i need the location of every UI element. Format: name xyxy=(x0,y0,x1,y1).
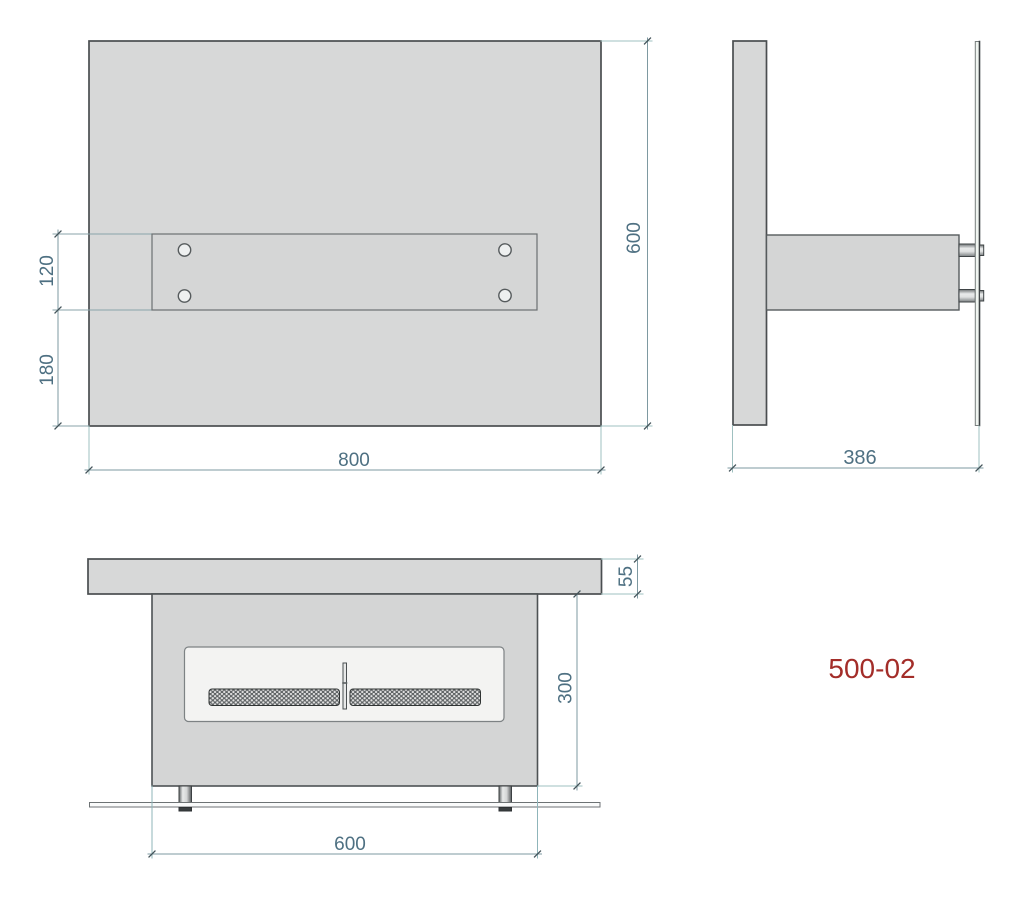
svg-text:55: 55 xyxy=(616,566,637,587)
svg-text:500-02: 500-02 xyxy=(828,653,915,684)
svg-text:180: 180 xyxy=(37,354,58,386)
svg-text:300: 300 xyxy=(556,672,577,704)
svg-text:600: 600 xyxy=(334,834,366,855)
svg-text:600: 600 xyxy=(624,222,645,254)
svg-text:800: 800 xyxy=(338,450,370,471)
svg-text:120: 120 xyxy=(37,255,58,287)
svg-text:386: 386 xyxy=(843,447,876,469)
